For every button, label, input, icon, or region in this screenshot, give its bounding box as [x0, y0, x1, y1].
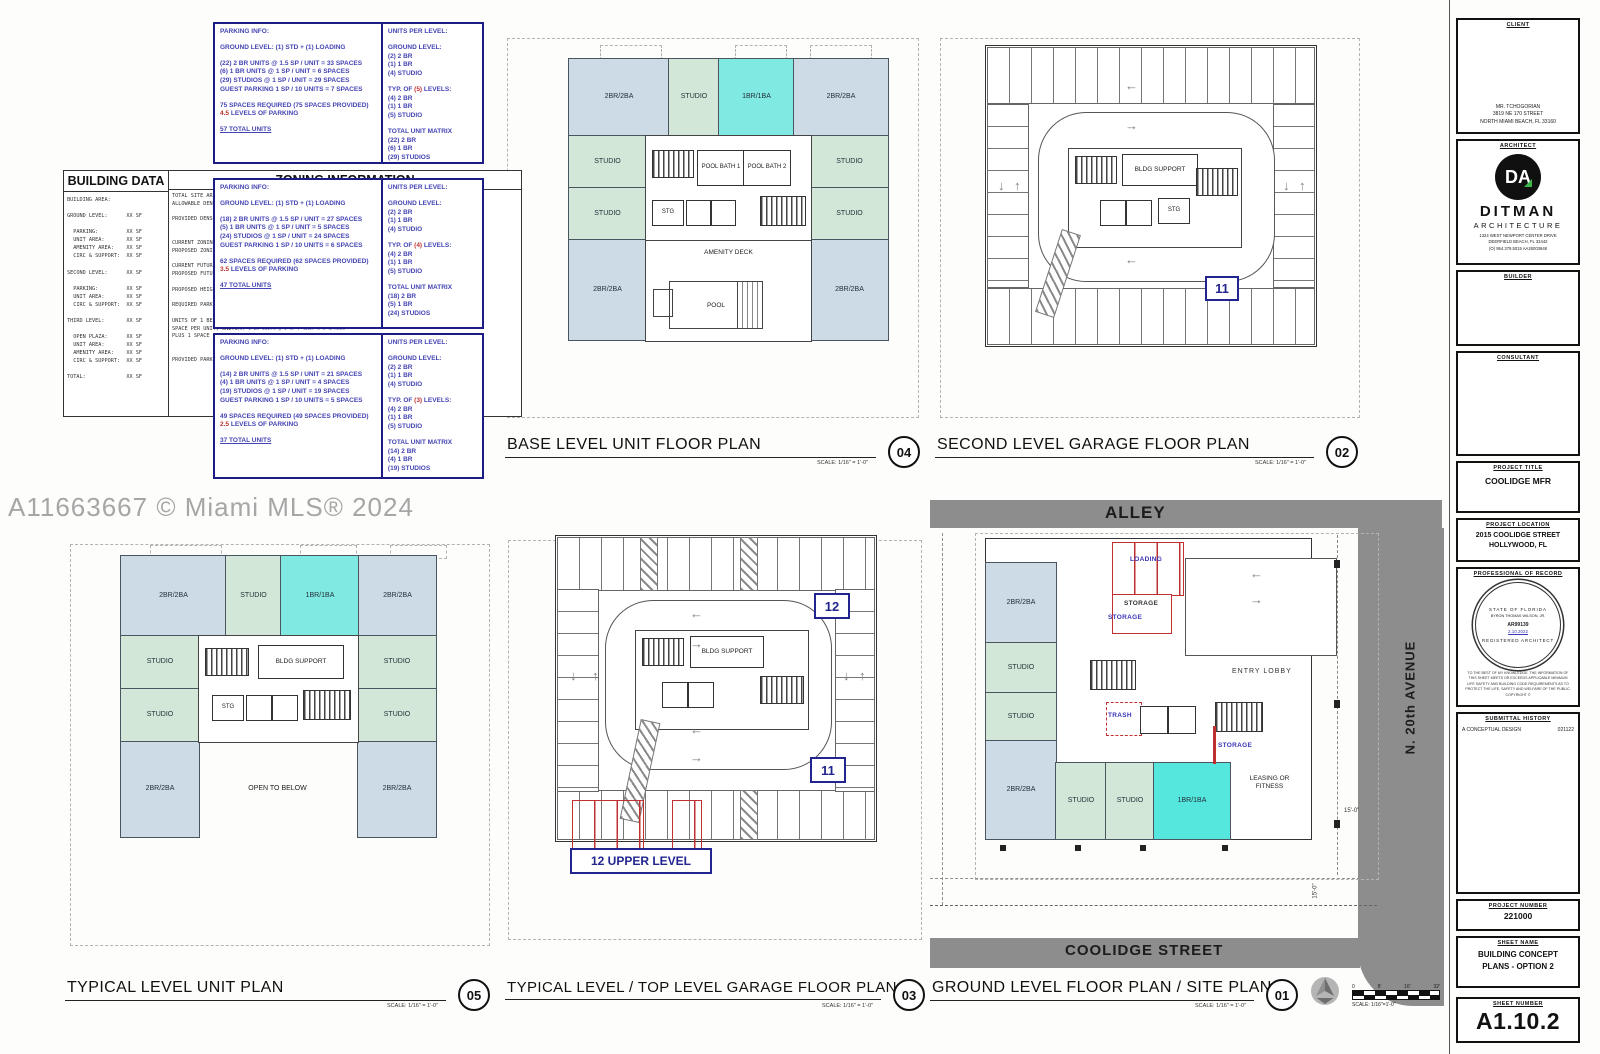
parking-info-box-2: PARKING INFO: GROUND LEVEL: (1) STD + (1… — [213, 178, 484, 329]
units-per-level-header: UNITS PER LEVEL: — [388, 28, 477, 37]
parking-info-box-3: PARKING INFO: GROUND LEVEL: (1) STD + (1… — [213, 333, 484, 479]
storage-label-blue: STORAGE — [1218, 742, 1252, 749]
project-location-header: PROJECT LOCATION — [1458, 522, 1578, 528]
parking-ground: GROUND LEVEL: (1) STD + (1) LOADING — [220, 44, 376, 53]
elevator-icon — [686, 200, 736, 226]
stair-icon — [760, 676, 804, 704]
amenity-deck-area: AMENITY DECK POOL — [645, 240, 812, 342]
elevator-icon — [1100, 200, 1152, 226]
base-plan-number: 04 — [888, 436, 920, 468]
entry-lobby-label: ENTRY LOBBY — [1232, 668, 1292, 675]
pool-bath-2: POOL BATH 2 — [743, 150, 791, 186]
sheet-name-box: SHEET NAME BUILDING CONCEPT PLANS - OPTI… — [1456, 936, 1580, 988]
parking-stalls — [987, 104, 1029, 288]
level-11-tag: 11 — [810, 757, 846, 783]
scale-bar: 0 8' 16' 32' SCALE: 1/16"=1'-0" — [1352, 984, 1440, 1008]
alley-road — [930, 500, 1442, 528]
parking-stalls — [1273, 104, 1315, 288]
hatched-column — [740, 537, 758, 591]
typical-unit-title: TYPICAL LEVEL UNIT PLAN — [65, 979, 446, 1001]
project-number-header: PROJECT NUMBER — [1458, 903, 1578, 909]
elevator-icon — [662, 682, 714, 708]
sheet-name-header: SHEET NAME — [1458, 940, 1578, 946]
dimension-15ft: 15'-0" — [1344, 808, 1359, 814]
submittal-row: A CONCEPTUAL DESIGN 021122 — [1458, 722, 1578, 733]
architect-address: 1324 WEST NEWPORT CENTER DRIVE DEERFIELD… — [1458, 233, 1578, 252]
architect-name: DITMAN — [1458, 203, 1578, 220]
stair-icon — [1215, 702, 1263, 732]
builder-box: BUILDER — [1456, 270, 1580, 346]
direction-arrow: → — [690, 750, 703, 765]
north-arrow-icon — [1310, 976, 1340, 1006]
stair-icon — [205, 648, 249, 676]
alley-label: ALLEY — [1105, 503, 1166, 523]
ground-title: GROUND LEVEL FLOOR PLAN / SITE PLAN — [930, 979, 1254, 1001]
second-garage-title: SECOND LEVEL GARAGE FLOOR PLAN — [935, 436, 1314, 458]
stair-icon — [1075, 156, 1117, 184]
parking-box3-right: UNITS PER LEVEL: GROUND LEVEL: (2) 2 BR … — [381, 335, 482, 477]
storage-stg: STG — [212, 695, 244, 721]
base-plan-title: BASE LEVEL UNIT FLOOR PLAN — [505, 436, 876, 458]
second-garage-title-row: SECOND LEVEL GARAGE FLOOR PLAN SCALE: 1/… — [935, 436, 1358, 458]
storage-stg: STG — [1158, 198, 1190, 224]
n20th-label: N. 20th AVENUE — [1403, 618, 1418, 778]
typical-unit-title-row: TYPICAL LEVEL UNIT PLAN SCALE: 1/16" = 1… — [65, 979, 490, 1001]
hatched-column — [640, 537, 658, 591]
level-12-tag: 12 — [814, 593, 850, 619]
pool-lanes — [737, 281, 763, 329]
direction-arrow: ← — [690, 722, 703, 737]
parking-total-units: 57 TOTAL UNITS — [220, 126, 376, 135]
typical-garage-number: 03 — [893, 979, 925, 1011]
direction-arrow: ↓ — [570, 668, 577, 683]
stair-icon — [1090, 660, 1136, 690]
leasing-or-fitness: LEASING OR FITNESS — [1232, 775, 1307, 792]
direction-arrow: ↑ — [592, 668, 599, 683]
upper-level-tag: 12 UPPER LEVEL — [570, 848, 712, 874]
base-unit-studio: STUDIO — [668, 58, 720, 137]
client-box: CLIENT MR. TCHOGORIAN 3819 NE 170 STREET… — [1456, 18, 1580, 134]
coolidge-label: COOLIDGE STREET — [1065, 942, 1223, 959]
amenity-deck-label: AMENITY DECK — [646, 249, 811, 256]
direction-arrow: ↑ — [859, 668, 866, 683]
direction-arrow: → — [1125, 118, 1138, 133]
building-data-title: BUILDING DATA — [64, 171, 168, 192]
elevator-icon — [1140, 706, 1196, 734]
open-to-below: OPEN TO BELOW — [198, 741, 357, 836]
consultant-box: CONSULTANT — [1456, 351, 1580, 456]
direction-arrow: ↑ — [1014, 178, 1021, 193]
project-location-box: PROJECT LOCATION 2015 COOLIDGE STREET HO… — [1456, 518, 1580, 562]
building-data-rows: BUILDING AREA: GROUND LEVEL: XX SF PARKI… — [64, 192, 168, 385]
base-plan-scale: SCALE: 1/16" = 1'-0" — [817, 460, 868, 466]
typical-unit-number: 05 — [458, 979, 490, 1011]
direction-arrow: ← — [1250, 566, 1263, 581]
por-disclaimer: TO THE BEST OF MY KNOWLEDGE, THE INFORMA… — [1461, 671, 1575, 698]
bldg-support: BLDG SUPPORT — [1122, 154, 1198, 186]
mls-watermark: A11663667 © Miami MLS® 2024 — [8, 492, 414, 523]
stair-icon — [1196, 168, 1238, 196]
project-title: COOLIDGE MFR — [1458, 476, 1578, 486]
building-data-table: BUILDING DATA BUILDING AREA: GROUND LEVE… — [63, 170, 169, 417]
direction-arrow: → — [1250, 592, 1263, 607]
direction-arrow: ↓ — [843, 668, 850, 683]
sheet-name: BUILDING CONCEPT PLANS - OPTION 2 — [1458, 949, 1578, 972]
level-11-tag: 11 — [1205, 276, 1239, 301]
parking-stalls — [557, 589, 599, 792]
trash-label: TRASH — [1108, 712, 1132, 719]
stair-icon — [642, 638, 684, 666]
parking-required: 75 SPACES REQUIRED (75 SPACES PROVIDED) — [220, 102, 376, 111]
parking-levels: 4.5 LEVELS OF PARKING — [220, 110, 376, 119]
typical-garage-title: TYPICAL LEVEL / TOP LEVEL GARAGE FLOOR P… — [505, 979, 881, 1000]
parking-header: PARKING INFO: — [220, 28, 376, 37]
parking-stalls — [987, 47, 1315, 104]
titleblock-divider — [1449, 0, 1450, 1054]
trash-room — [1106, 702, 1142, 736]
typical-garage-title-row: TYPICAL LEVEL / TOP LEVEL GARAGE FLOOR P… — [505, 979, 925, 1000]
dimension-15ft: 15'-0" — [1313, 883, 1319, 898]
parking-stalls — [557, 537, 875, 591]
direction-arrow: ↓ — [1283, 178, 1290, 193]
parking-stalls — [987, 288, 1315, 345]
consultant-header: CONSULTANT — [1458, 355, 1578, 361]
parking-box2-right: UNITS PER LEVEL: GROUND LEVEL: (2) 2 BR … — [381, 180, 482, 327]
second-garage-number: 02 — [1326, 436, 1358, 468]
storage-label-blue: STORAGE — [1108, 614, 1142, 621]
logo-green-accent — [1524, 179, 1532, 187]
project-location: 2015 COOLIDGE STREET HOLLYWOOD, FL — [1458, 531, 1578, 551]
project-title-header: PROJECT TITLE — [1458, 465, 1578, 471]
pool-bath-1: POOL BATH 1 — [697, 150, 745, 186]
direction-arrow: ← — [690, 606, 703, 621]
base-unit-2br: 2BR/2BA — [568, 58, 670, 137]
direction-arrow: ↓ — [998, 178, 1005, 193]
storage-stg: STG — [652, 200, 684, 226]
base-plan-title-row: BASE LEVEL UNIT FLOOR PLAN SCALE: 1/16" … — [505, 436, 920, 458]
stair-icon — [652, 150, 694, 178]
submittal-history-box: SUBMITTAL HISTORY A CONCEPTUAL DESIGN 02… — [1456, 712, 1580, 894]
client-info: MR. TCHOGORIAN 3819 NE 170 STREET NORTH … — [1458, 104, 1578, 127]
hatched-column — [740, 790, 758, 840]
red-parking-stalls — [572, 800, 644, 854]
parking-box1-right: UNITS PER LEVEL: GROUND LEVEL: (2) 2 BR … — [381, 24, 482, 162]
parking-box3-left: PARKING INFO: GROUND LEVEL: (1) STD + (1… — [215, 335, 381, 477]
builder-header: BUILDER — [1458, 274, 1578, 280]
parking-box2-left: PARKING INFO: GROUND LEVEL: (1) STD + (1… — [215, 180, 381, 327]
loading-stalls — [1112, 542, 1184, 596]
red-parking-stalls — [672, 800, 702, 854]
ground-title-row: GROUND LEVEL FLOOR PLAN / SITE PLAN SCAL… — [930, 979, 1298, 1001]
architect-box: ARCHITECT DA DITMAN ARCHITECTURE 1324 WE… — [1456, 139, 1580, 265]
loading-label: LOADING — [1130, 556, 1162, 563]
project-title-box: PROJECT TITLE COOLIDGE MFR — [1456, 461, 1580, 513]
elevator-icon — [246, 695, 298, 721]
por-header: PROFESSIONAL OF RECORD — [1458, 571, 1578, 577]
sheet-number-header: SHEET NUMBER — [1458, 1001, 1578, 1007]
ditman-logo: DA — [1495, 154, 1541, 200]
direction-arrow: ← — [1125, 78, 1138, 93]
direction-arrow: ↑ — [1299, 178, 1306, 193]
stair-icon — [760, 196, 806, 226]
ground-number: 01 — [1266, 979, 1298, 1011]
project-number: 221000 — [1458, 911, 1578, 921]
architect-seal: STATE OF FLORIDA BYRON THOMAS WILSON, JR… — [1475, 582, 1561, 668]
base-unit-2br: 2BR/2BA — [793, 58, 889, 137]
stair-icon — [303, 690, 351, 720]
parking-calc: (22) 2 BR UNITS @ 1.5 SP / UNIT = 33 SPA… — [220, 60, 376, 95]
scale-bar-note: SCALE: 1/16"=1'-0" — [1352, 1002, 1440, 1008]
storage-red-wall — [1213, 726, 1216, 764]
base-unit-1br: 1BR/1BA — [718, 58, 795, 137]
seal-license-number: AR99139 — [1507, 622, 1528, 628]
direction-arrow: → — [690, 636, 703, 651]
parking-info-box-1: PARKING INFO: GROUND LEVEL: (1) STD + (1… — [213, 22, 484, 164]
sheet-number-box: SHEET NUMBER A1.10.2 — [1456, 997, 1580, 1043]
architect-subname: ARCHITECTURE — [1458, 221, 1578, 230]
seal-date: 2.10.2022 — [1508, 629, 1528, 634]
storage-label: STORAGE — [1124, 600, 1158, 607]
sheet-number: A1.10.2 — [1458, 1008, 1578, 1035]
direction-arrow: ← — [1125, 252, 1138, 267]
parking-box1-left: PARKING INFO: GROUND LEVEL: (1) STD + (1… — [215, 24, 381, 162]
bldg-support: BLDG SUPPORT — [258, 645, 344, 679]
architectural-sheet: A11663667 © Miami MLS® 2024 BUILDING DAT… — [0, 0, 1600, 1054]
architect-header: ARCHITECT — [1458, 143, 1578, 149]
professional-of-record-box: PROFESSIONAL OF RECORD STATE OF FLORIDA … — [1456, 567, 1580, 707]
client-header: CLIENT — [1458, 22, 1578, 28]
project-number-box: PROJECT NUMBER 221000 — [1456, 899, 1580, 931]
